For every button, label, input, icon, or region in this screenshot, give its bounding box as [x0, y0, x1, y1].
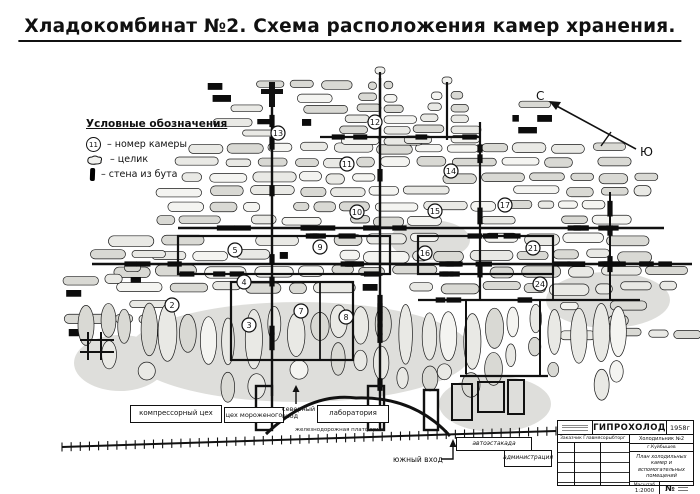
compass-north-label: С — [536, 89, 544, 103]
building-auto-ramp: автоэстакада — [456, 437, 532, 451]
sheet-fraction — [678, 487, 688, 491]
railroad-platform-label: железнодорожная платформа — [295, 427, 384, 433]
rubble-wall-icon — [90, 168, 95, 181]
building-icecream-shop: цех мороженого — [224, 407, 284, 423]
building-laboratory: лаборатория — [317, 405, 389, 423]
legend-item-pillar: – целик — [86, 152, 256, 167]
building-label: администрация — [503, 455, 553, 461]
building-label: компрессорный цех — [139, 410, 213, 417]
chamber-number-text: 13 — [273, 129, 283, 138]
chamber-number-marker: 21 — [526, 241, 540, 255]
chamber-number-text: 12 — [370, 118, 380, 127]
chamber-number-marker: 9 — [313, 240, 327, 254]
chamber-number-icon: 11 — [86, 137, 101, 152]
chamber-number-text: 15 — [430, 207, 440, 216]
title-block-org: ГИПРОХОЛОД — [593, 421, 667, 434]
chamber-number-marker: 3 — [242, 318, 256, 332]
chamber-number-marker: 5 — [228, 243, 242, 257]
pillar-blob-icon — [86, 154, 104, 166]
building-compressor-shop: компрессорный цех — [130, 405, 222, 423]
compass-south-label: Ю — [640, 145, 653, 159]
legend-item-label: – номер камеры — [107, 139, 187, 150]
chamber-number-marker: 15 — [428, 204, 442, 218]
chamber-number-text: 2 — [169, 301, 174, 310]
building-administration: администрация — [504, 450, 552, 467]
chamber-number-text: 14 — [446, 167, 456, 176]
chamber-number-marker: 2 — [165, 298, 179, 312]
chamber-number-text: 3 — [246, 321, 251, 330]
legend: Условные обозначения 11 – номер камеры –… — [86, 118, 256, 182]
building-label: автоэстакада — [472, 441, 515, 447]
chamber-number-text: 8 — [343, 313, 348, 322]
chamber-number-marker: 7 — [294, 304, 308, 318]
title-block-customer: Заказчик Главмясорыбторг — [558, 435, 629, 443]
chamber-number-marker: 17 — [498, 198, 512, 212]
drawing-sheet: СЮ234578910111213141516172124 Хладокомби… — [0, 0, 700, 494]
title-block-object: Холодильник №2 — [630, 435, 693, 444]
chamber-number-marker: 16 — [418, 246, 432, 260]
chamber-number-marker: 11 — [340, 157, 354, 171]
chamber-number-text: 5 — [232, 246, 237, 255]
chamber-number-text: 24 — [535, 280, 545, 289]
title-block-sheet-number: № — [660, 482, 693, 494]
chamber-number-marker: 4 — [237, 275, 251, 289]
chamber-number-text: 16 — [420, 249, 430, 258]
title-block-scale: Масштаб 1:2000 — [630, 482, 660, 494]
chamber-number-marker: 8 — [339, 310, 353, 324]
chamber-number-text: 10 — [352, 208, 362, 217]
chamber-number-text: 17 — [500, 201, 510, 210]
chamber-number-marker: 24 — [533, 277, 547, 291]
title-block-city: г.Куйбышев — [630, 444, 693, 452]
chamber-number-text: 21 — [528, 244, 538, 253]
chamber-number-text: 11 — [342, 160, 352, 169]
title-block-year: 1958г — [667, 421, 693, 434]
chamber-number-text: 7 — [298, 307, 303, 316]
title-block-signatures: Заказчик Главмясорыбторг — [558, 435, 630, 485]
chamber-number-marker: 10 — [350, 205, 364, 219]
title-block-stamp-cell — [558, 421, 593, 434]
building-label: цех мороженого — [226, 412, 283, 419]
legend-item-chamber-number: 11 – номер камеры — [86, 137, 256, 152]
legend-item-wall: – стена из бута — [86, 167, 256, 182]
chamber-number-text: 4 — [241, 278, 246, 287]
legend-title: Условные обозначения — [86, 118, 256, 130]
title-block-doc-title: План холодильных камер и вспомогательных… — [630, 452, 693, 482]
south-entrance-label: южный вход — [393, 456, 443, 464]
chamber-number-text: 9 — [317, 243, 322, 252]
north-entrance-label: северный вход — [282, 406, 316, 420]
legend-item-label: – стена из бута — [101, 169, 178, 180]
scale-value: 1:2000 — [630, 488, 659, 494]
sheet-label: № — [665, 484, 675, 493]
chamber-number-marker: 13 — [271, 126, 285, 140]
chamber-number-marker: 12 — [368, 115, 382, 129]
page-title: Хладокомбинат №2. Схема расположения кам… — [18, 16, 681, 42]
legend-item-label: – целик — [110, 154, 148, 165]
building-label: лаборатория — [329, 410, 377, 417]
chamber-number-marker: 14 — [444, 164, 458, 178]
title-block: ГИПРОХОЛОД 1958г Заказчик Главмясорыбтор… — [557, 420, 694, 486]
